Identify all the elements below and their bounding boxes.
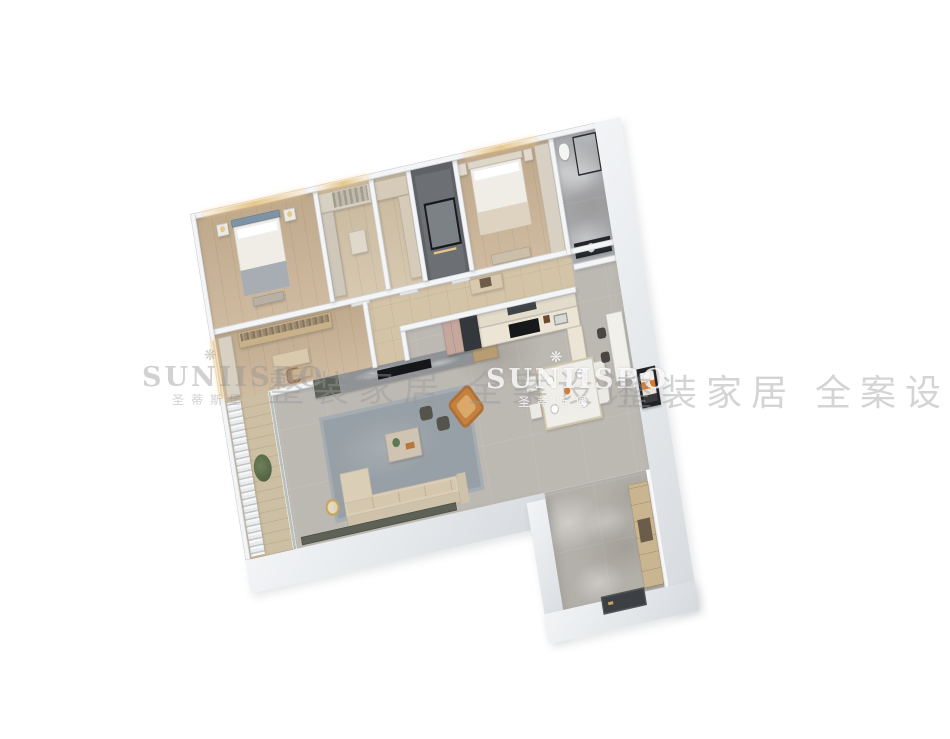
floorplan-3d-model	[190, 116, 708, 739]
dining-chair-1	[525, 375, 539, 393]
dining-chair-4	[597, 387, 611, 405]
bar-stool-2	[600, 351, 610, 363]
coffee-station	[543, 315, 550, 324]
pouf-2	[436, 415, 451, 431]
pouf-1	[419, 405, 434, 421]
closet-dresser	[348, 229, 368, 255]
floorplan-stage: ❋ SUNIISBO 圣蒂斯堡 整装家居 全案设计 ❋ SUNIISBO 圣蒂斯…	[0, 0, 950, 733]
master-nightstand-right	[523, 148, 534, 162]
dining-chair-2	[529, 402, 543, 420]
sofa-chaise	[340, 468, 373, 504]
bar-stool-1	[596, 327, 606, 339]
